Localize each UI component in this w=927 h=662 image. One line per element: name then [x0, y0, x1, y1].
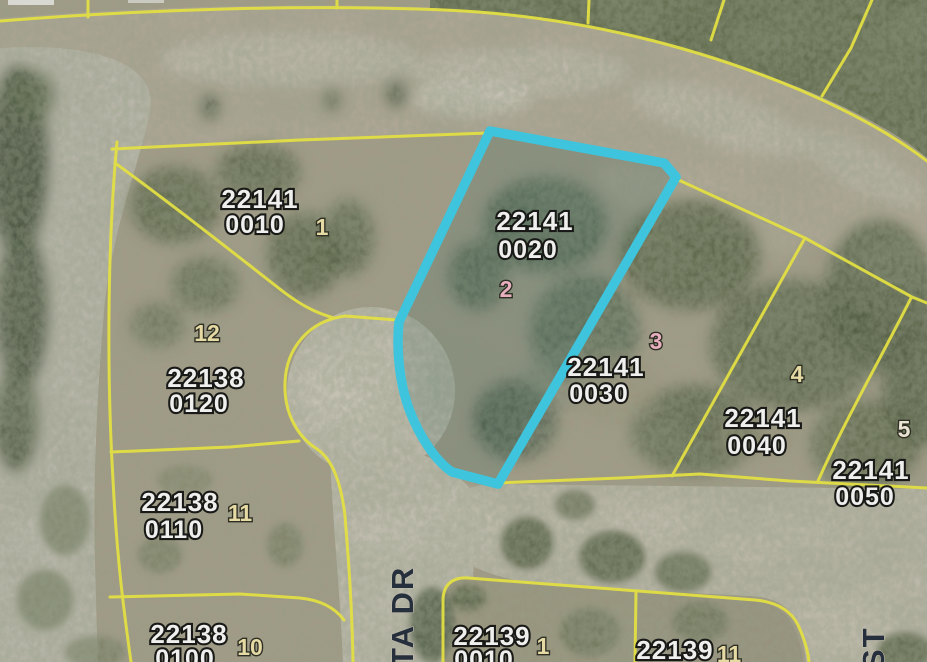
map-image: 22141 0010 1 22141 0020 2 22141 0030 3 2…	[0, 0, 927, 662]
photo-cast-overlay	[0, 0, 927, 662]
aerial-parcel-map: 22141 0010 1 22141 0020 2 22141 0030 3 2…	[0, 0, 927, 662]
